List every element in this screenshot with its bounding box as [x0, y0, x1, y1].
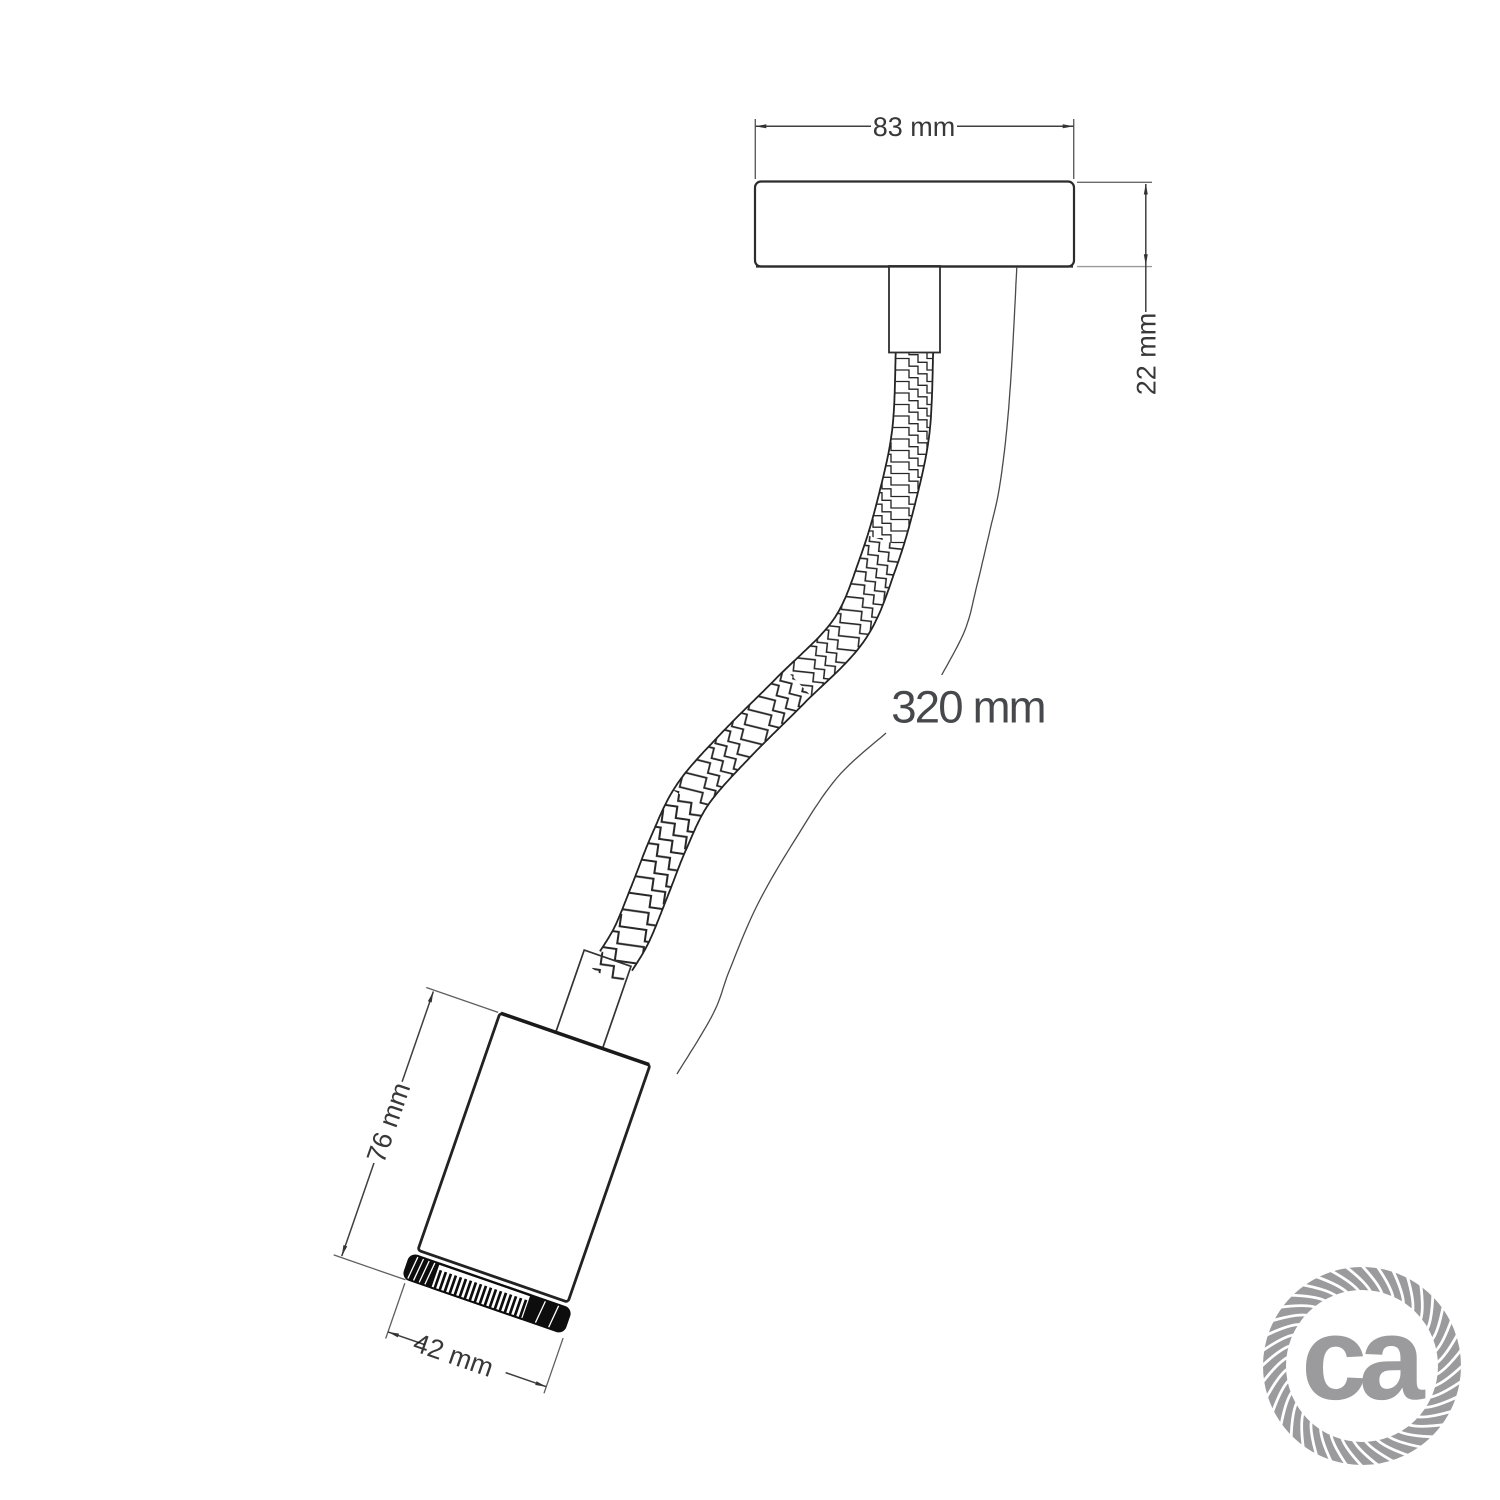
svg-text:76 mm: 76 mm	[361, 1079, 416, 1167]
svg-text:ca: ca	[1301, 1293, 1426, 1425]
svg-text:320 mm: 320 mm	[891, 682, 1045, 733]
svg-text:83 mm: 83 mm	[873, 112, 956, 142]
svg-text:42 mm: 42 mm	[410, 1328, 498, 1383]
svg-text:22 mm: 22 mm	[1131, 313, 1161, 396]
